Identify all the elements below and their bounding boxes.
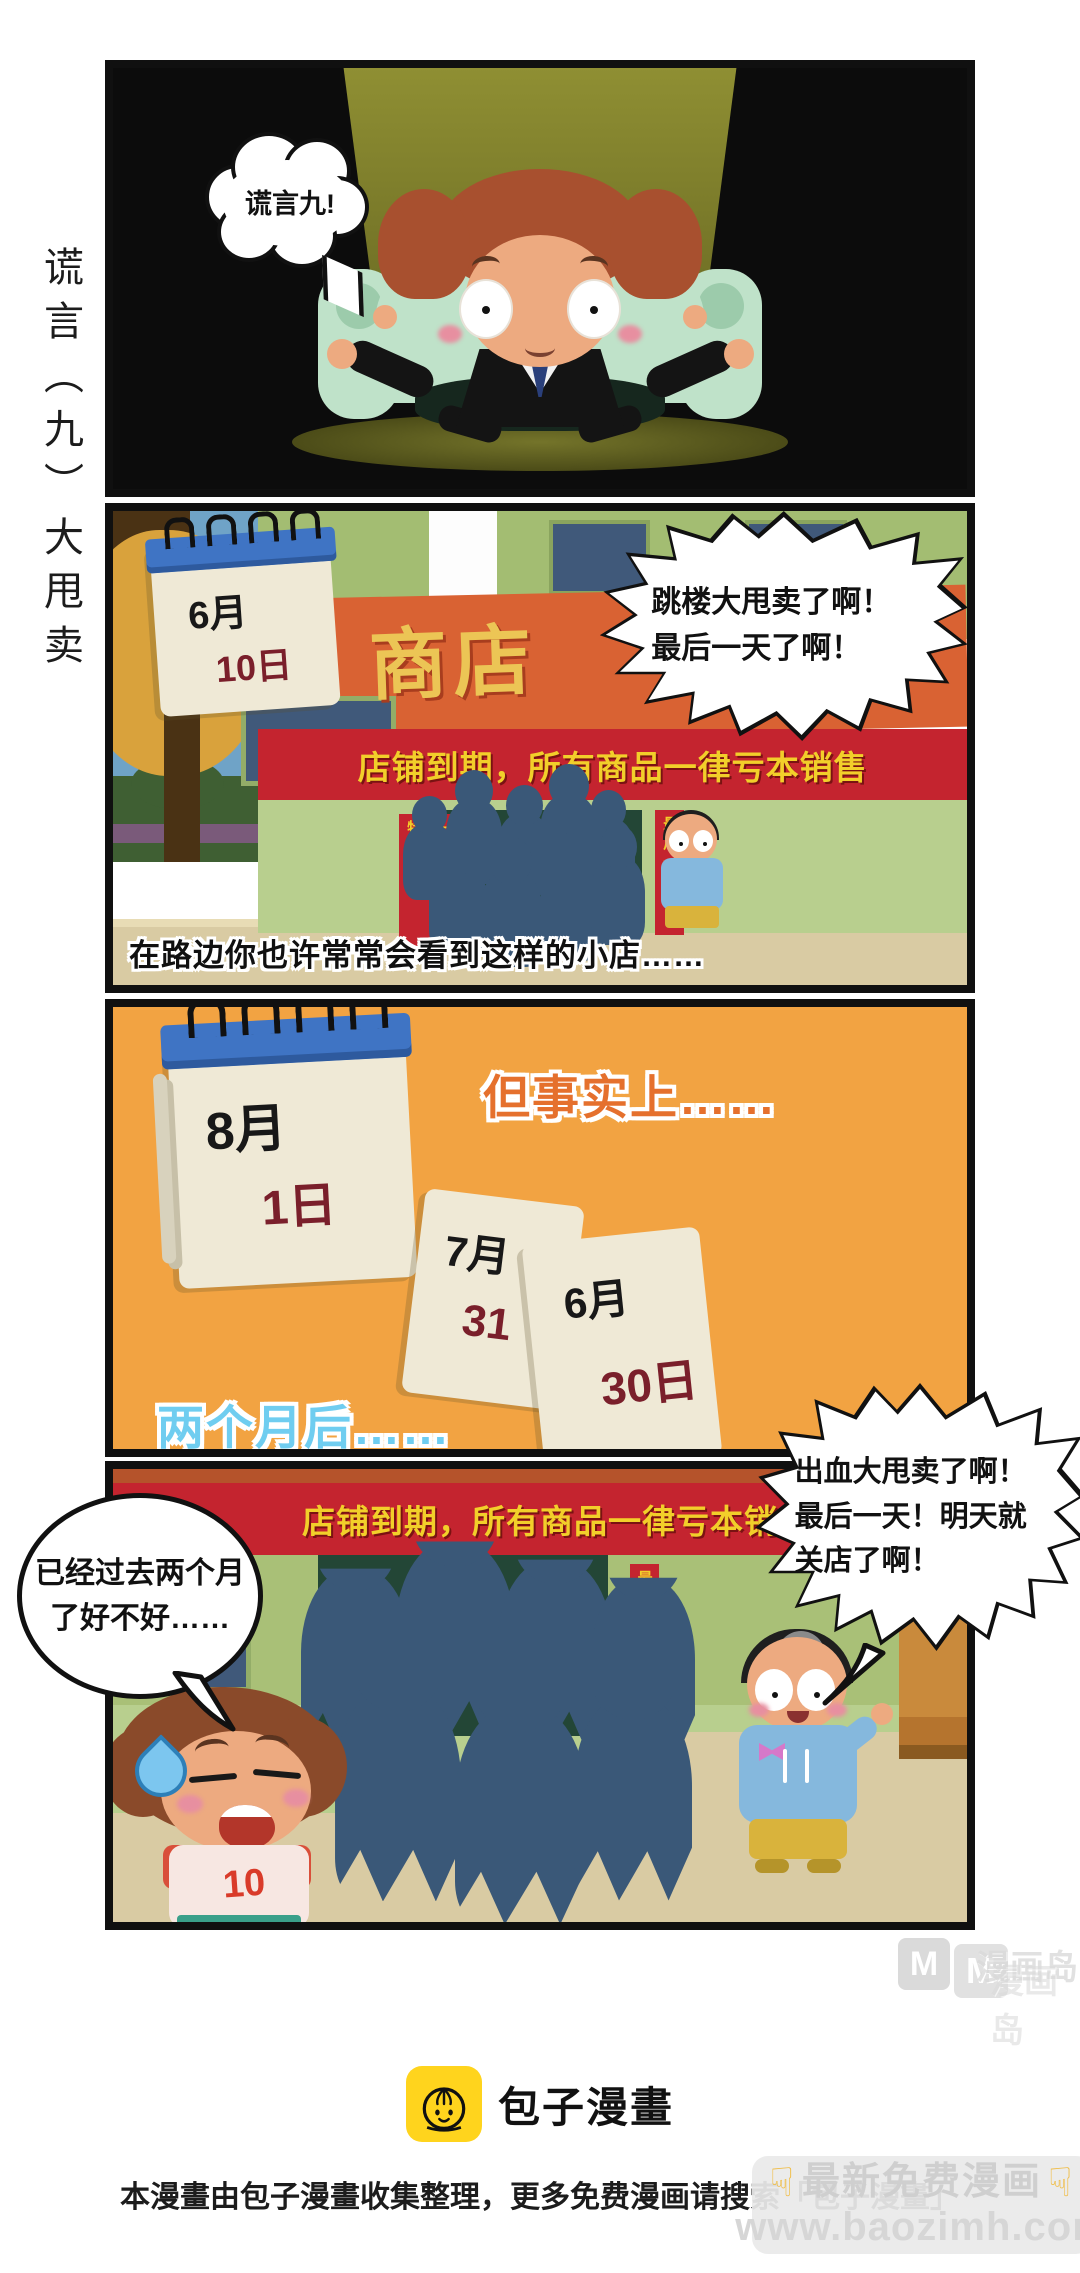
page-month: 6月 (560, 1264, 631, 1331)
comic-panel-4: 店铺到期，所有商品一律亏本销 最后一天 (105, 1461, 975, 1930)
bubble-tail (819, 1643, 889, 1709)
calendar-august: 8月 1日 (166, 1021, 417, 1289)
shout-line-3: 关店了啊！ (795, 1539, 940, 1584)
eye-right (567, 279, 621, 339)
hair-right (610, 189, 702, 299)
calendar-day: 10日 (214, 636, 293, 693)
speech-bubble-ellipse: 已经过去两个月 了好不好…… (17, 1493, 263, 1699)
chapter-title-vertical: 谎言（九）大甩卖 (40, 246, 80, 678)
shout-line-1: 跳楼大甩卖了啊！ (651, 580, 891, 627)
hand-left (327, 339, 357, 369)
cheek-left (438, 325, 462, 343)
manhuadao-name-2: 漫画岛 (990, 1954, 1080, 2052)
speech-bubble-cloud: 谎言九! (205, 130, 375, 280)
shout-line-2: 最后一天！明天就 (795, 1495, 1027, 1540)
badge-title: 最新免费漫画 (802, 2162, 1042, 2204)
baozimh-watermark-badge: ☟ 最新免费漫画 ☟ www.baozimh.com (752, 2156, 1080, 2254)
sale-banner-text: 店铺到期，所有商品一律亏本销 (302, 1495, 778, 1543)
down-hand-icon: ☟ (770, 2161, 796, 2205)
shout-bubble: 跳楼大甩卖了啊！ 最后一天了啊！ (600, 511, 968, 741)
panel3-time-caption: 两个月后…… (157, 1389, 451, 1457)
eye-left (459, 279, 513, 339)
manhuadao-watermark: M M 漫画岛 漫画岛 (898, 1932, 1080, 1996)
calendar-month: 8月 (203, 1085, 288, 1164)
kid-character (655, 814, 731, 934)
calendar-month: 6月 (186, 581, 249, 640)
sweating-boy-character: 10 (113, 1687, 407, 1922)
panel3-heading: 但事实上…… (483, 1059, 777, 1128)
page-month: 7月 (441, 1217, 513, 1286)
shout-line-2: 最后一天了啊！ (651, 626, 861, 673)
hand-right (724, 339, 754, 369)
torn-page-june: 6月 30日 (521, 1226, 722, 1457)
bubble-text: 谎言九! (205, 182, 375, 221)
ellipse-line-1: 已经过去两个月 (35, 1551, 245, 1596)
brand-name: 包子漫畫 (498, 2074, 674, 2135)
comic-panel-2: 商店 店铺到期，所有商品一律亏本销售 特价处理 一件不留 最后一天 6月 10日 (105, 503, 975, 993)
badge-url: www.baozimh.com (735, 2205, 1080, 2249)
calendar-june: 6月 10日 (149, 533, 341, 717)
comic-panel-1: 谎言九! (105, 60, 975, 497)
page-day: 30日 (597, 1343, 701, 1419)
calendar-day: 1日 (260, 1165, 338, 1239)
manhuadao-logo-icon: M (898, 1938, 950, 1990)
hair-left (378, 189, 470, 299)
ear-right (683, 305, 707, 329)
baozi-logo-icon (406, 2066, 482, 2142)
shop-sign-text: 商店 (367, 598, 539, 716)
sale-banner-text: 店铺到期，所有商品一律亏本销售 (358, 741, 868, 789)
page-day: 31 (459, 1296, 514, 1352)
footer-brand: 包子漫畫 (0, 2066, 1080, 2142)
narration-caption: 在路边你也许常常会看到这样的小店…… (129, 930, 705, 975)
mouth (525, 339, 555, 357)
shout-line-1: 出血大甩卖了啊！ (795, 1450, 1027, 1495)
shout-bubble: 出血大甩卖了啊！ 最后一天！明天就 关店了啊！ (755, 1383, 1080, 1651)
down-hand-icon-2: ☟ (1048, 2161, 1074, 2205)
shirt-number: 10 (222, 1862, 267, 1908)
ellipse-line-2: 了好不好…… (50, 1596, 230, 1641)
